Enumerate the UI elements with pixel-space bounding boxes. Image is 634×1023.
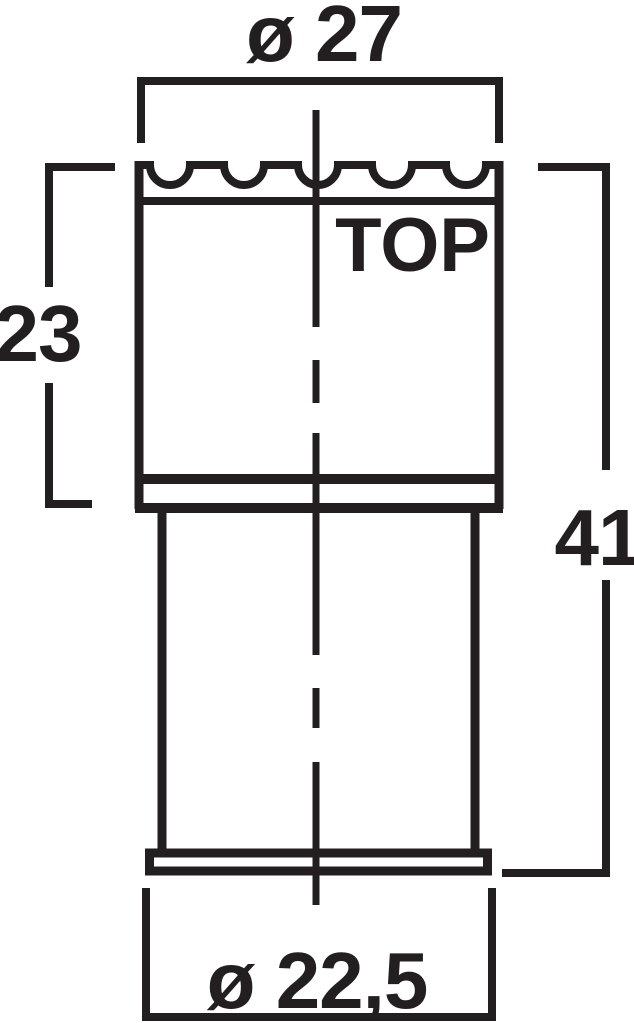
part-top-label: TOP <box>335 203 490 288</box>
part-dimension-drawing: ø 27 TOP 23 41 ø 22,5 <box>0 0 634 1023</box>
technical-drawing-page: ø 27 TOP 23 41 ø 22,5 <box>0 0 634 1023</box>
dim-label-base-diameter: ø 22,5 <box>207 936 428 1023</box>
dim-label-top-diameter: ø 27 <box>246 0 402 78</box>
dim-label-upper-height: 23 <box>0 289 81 378</box>
dim-label-overall-height: 41 <box>555 493 634 582</box>
dim-bracket-top-diameter <box>141 81 499 143</box>
